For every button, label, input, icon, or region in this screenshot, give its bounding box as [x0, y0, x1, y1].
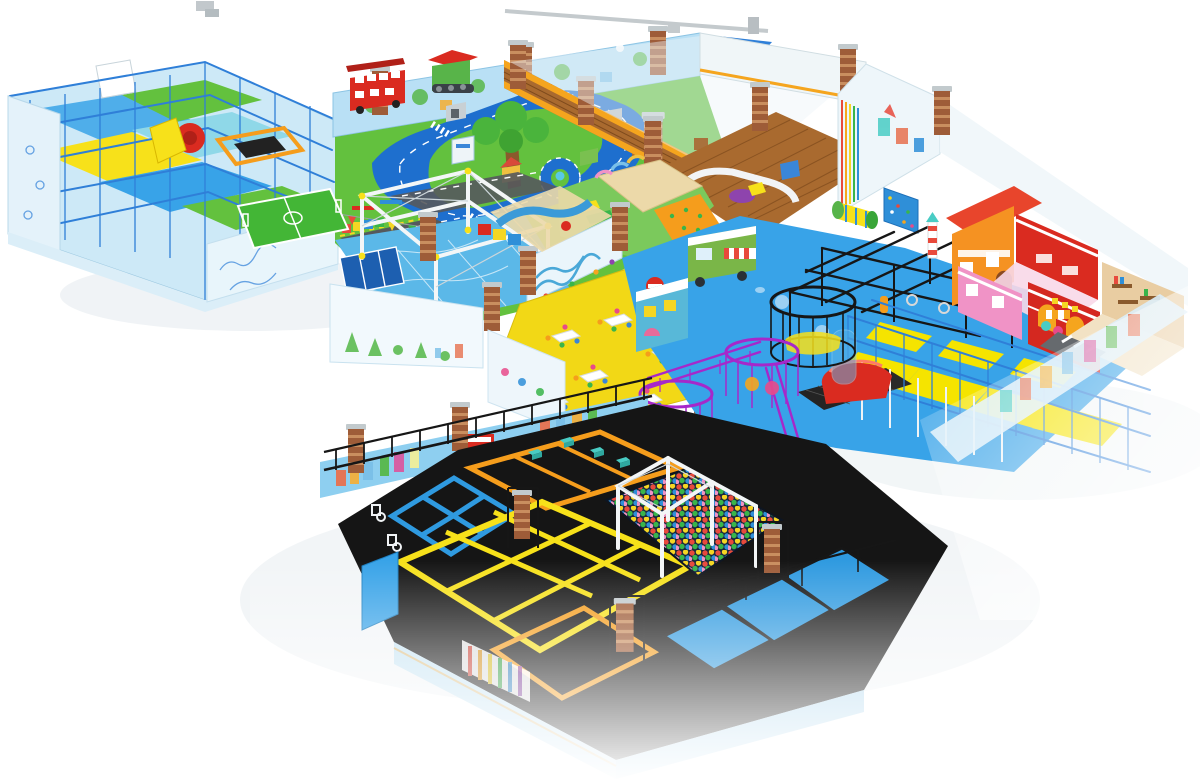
double-decker-bus — [346, 58, 405, 114]
playground-render — [0, 0, 1200, 779]
climb-roller — [832, 201, 878, 229]
rock-wall — [884, 188, 918, 233]
candy-pillar — [926, 212, 939, 258]
left-softplay — [8, 60, 338, 312]
playground-svg — [0, 0, 1200, 779]
bottom-fade — [250, 560, 1030, 779]
